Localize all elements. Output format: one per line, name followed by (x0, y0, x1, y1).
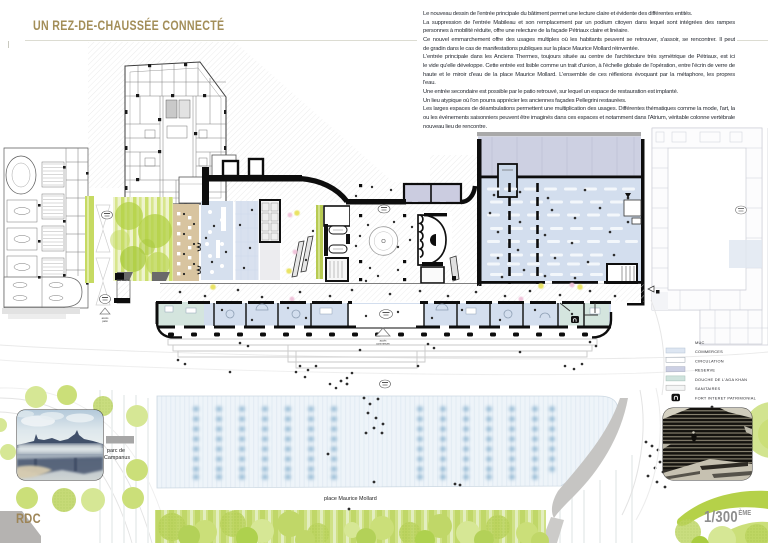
svg-text:Campanus: Campanus (104, 455, 130, 461)
svg-text:MUC: MUC (695, 340, 705, 345)
svg-text:CIRCULATION: CIRCULATION (695, 358, 724, 363)
svg-text:parc de: parc de (107, 448, 125, 454)
svg-text:SANITAIRES: SANITAIRES (695, 386, 720, 391)
svg-text:DOUCHE DE L'AGA KHAN: DOUCHE DE L'AGA KHAN (695, 377, 747, 382)
svg-text:FORT INTERET PATRIMONIAL: FORT INTERET PATRIMONIAL (695, 396, 757, 401)
svg-text:1/300: 1/300 (704, 509, 738, 526)
svg-text:place Maurice Mollard: place Maurice Mollard (324, 496, 377, 502)
svg-text:COMMERCES: COMMERCES (695, 349, 723, 354)
svg-text:ÈME: ÈME (738, 507, 751, 517)
svg-text:patio: patio (102, 319, 108, 323)
svg-text:RDC: RDC (16, 511, 41, 526)
svg-text:RESERVE: RESERVE (695, 368, 715, 373)
